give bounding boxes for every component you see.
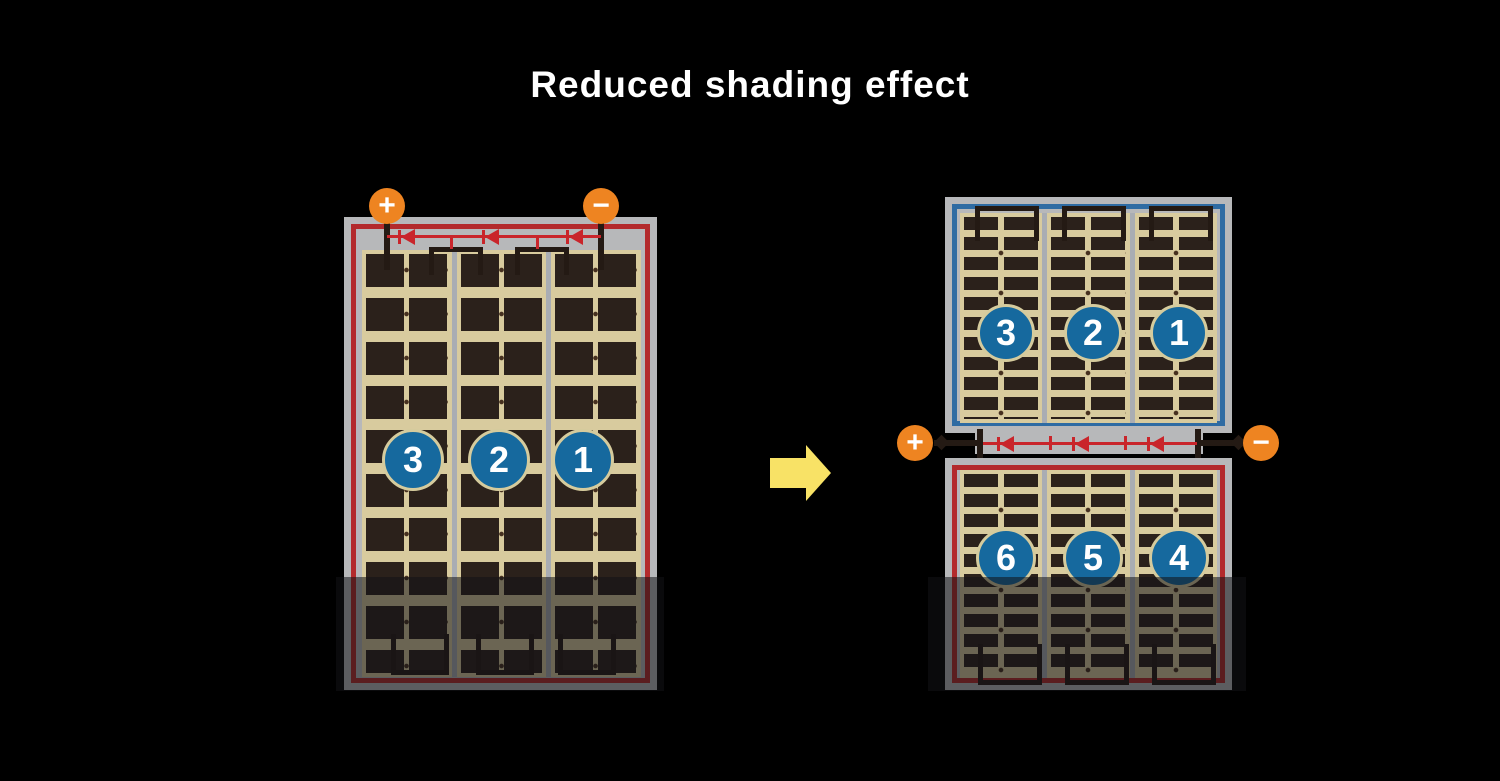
bypass-diode-icon	[566, 229, 583, 245]
diagram-title: Reduced shading effect	[0, 64, 1500, 106]
shading-overlay	[336, 577, 664, 691]
negative-terminal: −	[583, 188, 619, 224]
bypass-diode-icon	[482, 229, 499, 245]
string-number-circle: 2	[1064, 304, 1122, 362]
diode-wire-tap	[1049, 436, 1052, 450]
negative-busbar-stem	[598, 220, 604, 270]
shading-overlay	[928, 577, 1246, 691]
top-busbar-bridge	[975, 206, 1039, 241]
diode-wire-tap	[536, 236, 539, 249]
flow-arrow-head-icon	[806, 445, 831, 501]
positive-terminal: +	[897, 425, 933, 461]
diode-wire-tap	[450, 236, 453, 249]
string-number-circle: 3	[977, 304, 1035, 362]
flow-arrow-icon	[770, 458, 806, 488]
bypass-diode-icon	[398, 229, 415, 245]
string-number-circle: 3	[382, 429, 444, 491]
diagram-canvas: Reduced shading effect 3 2 1 + −	[0, 0, 1500, 781]
top-busbar-bridge	[1149, 206, 1213, 241]
top-busbar-bridge	[515, 247, 569, 275]
positive-busbar-stem	[384, 220, 390, 270]
top-busbar-bridge	[429, 247, 483, 275]
string-number-circle: 2	[468, 429, 530, 491]
bypass-diode-icon	[1147, 436, 1164, 452]
diode-wire-tap	[1124, 436, 1127, 450]
string-number-circle: 1	[1150, 304, 1208, 362]
bypass-diode-icon	[997, 436, 1014, 452]
string-number-circle: 1	[552, 429, 614, 491]
wire-connector-node	[934, 435, 950, 451]
top-busbar-bridge	[1062, 206, 1126, 241]
diode-wire	[983, 442, 1197, 445]
bypass-diode-icon	[1072, 436, 1089, 452]
negative-terminal: −	[1243, 425, 1279, 461]
positive-terminal: +	[369, 188, 405, 224]
